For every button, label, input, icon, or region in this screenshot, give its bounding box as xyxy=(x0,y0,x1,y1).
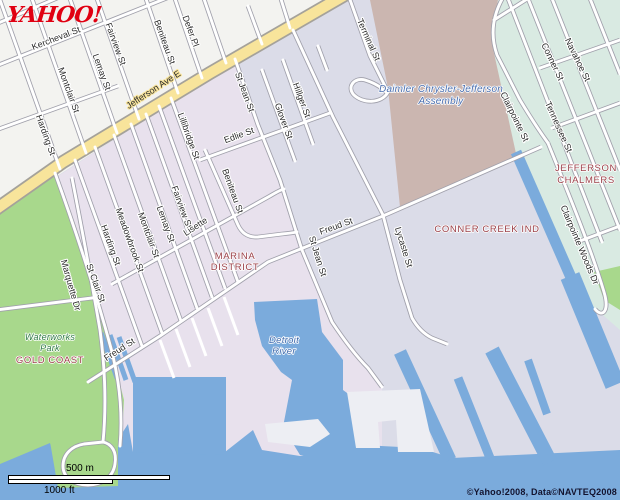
scale-bar: 500 m 1000 ft xyxy=(8,463,188,496)
scale-metric-label: 500 m xyxy=(66,463,188,474)
area-label: CHALMERS xyxy=(557,175,615,186)
area-label: Waterworks xyxy=(25,332,76,342)
area-label: JEFFERSON xyxy=(555,163,617,174)
map-viewport[interactable]: Kercheval StFairview StBeniteau StDefer … xyxy=(0,0,620,500)
copyright-attribution: ©Yahoo!2008, Data©NAVTEQ2008 xyxy=(467,487,617,497)
area-label: CONNER CREEK IND xyxy=(434,224,539,235)
area-label: Detroit xyxy=(269,335,299,346)
area-label: Park xyxy=(40,343,60,353)
area-label: MARINA xyxy=(215,251,256,262)
scale-imperial-label: 1000 ft xyxy=(44,485,188,496)
area-label: GOLD COAST xyxy=(16,355,84,366)
water-body xyxy=(133,377,226,455)
scale-imperial-bar xyxy=(8,479,113,484)
map-canvas[interactable]: Kercheval StFairview StBeniteau StDefer … xyxy=(0,0,620,500)
area-label: Assembly xyxy=(418,96,465,107)
yahoo-logo: YAHOO! xyxy=(6,2,103,28)
area-label: Daimler Chrysler-Jefferson xyxy=(379,84,503,95)
area-label: River xyxy=(272,346,296,357)
area-label: DISTRICT xyxy=(211,262,260,273)
